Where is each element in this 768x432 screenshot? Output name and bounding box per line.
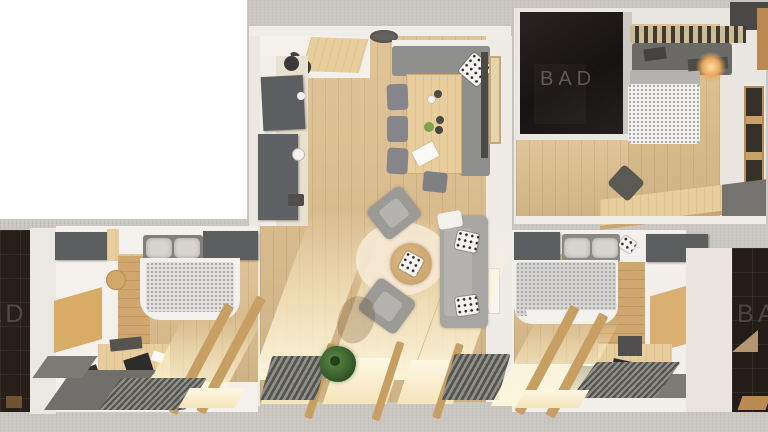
blank-white-area — [0, 0, 247, 219]
doormat — [301, 37, 368, 73]
floorplan-render: BAD BAD — [0, 0, 768, 432]
wall-lamp-glow — [696, 52, 726, 82]
kitchen-sink — [292, 148, 305, 161]
table-plate-2 — [436, 116, 444, 124]
topright-duvet — [628, 84, 700, 144]
bottomleft-duvet — [146, 262, 234, 312]
bottomright-duvet — [516, 262, 616, 316]
bottomleft-pillow-2 — [174, 238, 200, 258]
dining-chair-3 — [386, 147, 408, 174]
dining-chair-2 — [387, 116, 408, 142]
kitchen-cabinet-lower — [258, 134, 298, 220]
table-cup — [427, 95, 436, 104]
dining-chair-4 — [422, 171, 448, 193]
kitchen-cabinet-upper — [261, 75, 306, 131]
bottomleft-bath-wall — [30, 228, 56, 414]
bathroom-left-label: BAD — [0, 300, 27, 329]
bathroom-top-dark: BAD — [520, 12, 623, 134]
bottomright-window-glass — [515, 390, 589, 408]
kitchen-stove — [288, 194, 304, 206]
bottomright-bath-wall — [686, 248, 732, 412]
bottomleft-cabinet-left — [55, 232, 107, 260]
bathroom-right-floor-sliver — [737, 396, 768, 410]
tv-panel — [481, 52, 488, 158]
table-plant — [424, 122, 434, 132]
topright-wood-sliver — [757, 8, 768, 70]
topright-bottom-wall — [516, 216, 766, 224]
bottomleft-window-glass — [178, 388, 246, 408]
bottomleft-cabinet-right — [203, 231, 258, 260]
bathroom-right-label: BAD — [737, 300, 768, 329]
bottomleft-pillow-1 — [146, 238, 172, 258]
dining-chair-1 — [387, 84, 409, 111]
kitchen-kettle — [284, 56, 299, 71]
bottomright-pillow-2 — [592, 238, 618, 258]
kitchen-dish — [297, 92, 305, 100]
bathroom-left-floor-sliver — [6, 396, 22, 408]
bottomright-desk-organizer — [618, 336, 642, 356]
mirror-frame — [489, 56, 501, 144]
sofa-cushion-2 — [455, 295, 479, 317]
bathroom-top-inner-shadow — [534, 64, 586, 124]
bathroom-right-dark — [732, 248, 768, 412]
bottomright-cabinet-left — [514, 232, 560, 260]
plant-leaf-detail — [330, 356, 340, 366]
bottomleft-stool — [106, 270, 126, 290]
topright-headboard-shelf — [630, 26, 746, 43]
bottomright-pillow-1 — [564, 238, 590, 258]
table-plate-3 — [435, 126, 443, 134]
